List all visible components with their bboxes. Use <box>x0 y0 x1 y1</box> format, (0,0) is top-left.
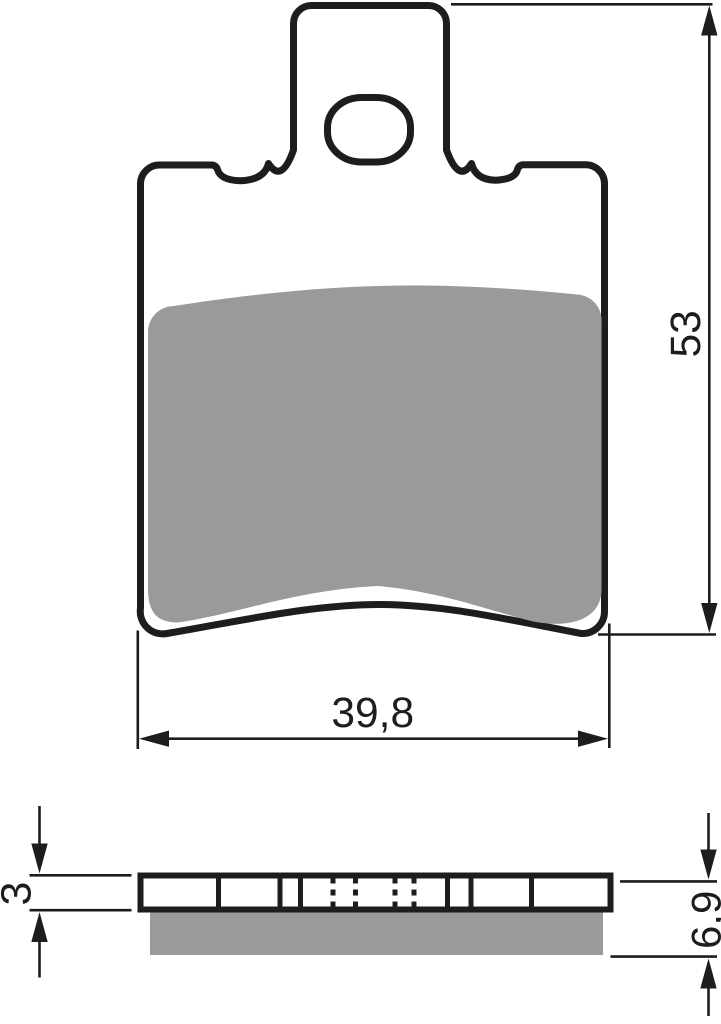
svg-text:53: 53 <box>663 310 710 357</box>
svg-text:3: 3 <box>0 882 41 906</box>
svg-text:6,9: 6,9 <box>683 891 721 949</box>
svg-text:39,8: 39,8 <box>331 690 414 737</box>
